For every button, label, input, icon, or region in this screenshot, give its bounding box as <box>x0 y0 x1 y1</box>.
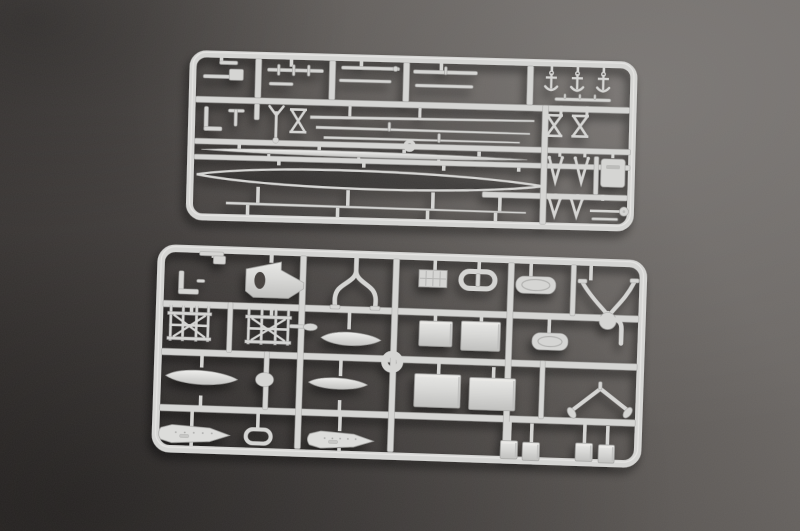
photo-effects <box>0 0 800 531</box>
sprue-photo-canvas <box>0 0 800 531</box>
model-kit-sprues-photo <box>0 0 800 531</box>
film-grain <box>0 0 800 531</box>
photo-stage <box>0 0 800 531</box>
